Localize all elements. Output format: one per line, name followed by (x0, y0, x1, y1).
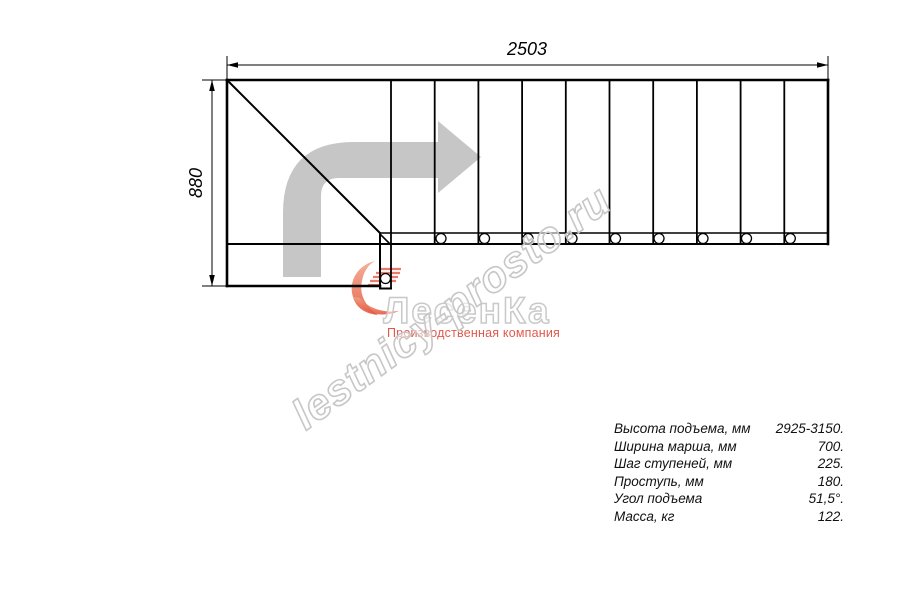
spec-row: Масса, кг 122. (614, 508, 844, 526)
spec-value: 225. (818, 455, 844, 473)
baluster-circle (480, 234, 490, 244)
baluster-circle (523, 234, 533, 244)
logo-tagline: Производственная компания (387, 326, 557, 340)
spec-row: Высота подъема, мм 2925-3150. (614, 420, 844, 438)
baluster-circle (785, 234, 795, 244)
baluster-circles (381, 234, 796, 284)
spec-label: Ширина марша, мм (614, 438, 737, 456)
spec-value: 2925-3150. (776, 420, 844, 438)
baluster-circle (567, 234, 577, 244)
left-dimension: 880 (186, 80, 226, 286)
spec-value: 122. (818, 508, 844, 526)
spec-value: 700. (818, 438, 844, 456)
spec-label: Проступь, мм (614, 473, 704, 491)
spec-value: 180. (818, 473, 844, 491)
baluster-circle (436, 234, 446, 244)
baluster-circle (698, 234, 708, 244)
spec-label: Высота подъема, мм (614, 420, 750, 438)
baluster-circle (654, 234, 664, 244)
dimension-label-width: 2503 (506, 39, 547, 59)
spec-row: Проступь, мм 180. (614, 473, 844, 491)
baluster-circle (742, 234, 752, 244)
dimension-label-height: 880 (186, 168, 206, 198)
baluster-circle (611, 234, 621, 244)
spec-row: Ширина марша, мм 700. (614, 438, 844, 456)
spec-row: Угол подъема 51,5°. (614, 490, 844, 508)
spec-value: 51,5°. (809, 490, 844, 508)
spec-label: Угол подъема (614, 490, 702, 508)
specs-table: Высота подъема, мм 2925-3150. Ширина мар… (614, 420, 844, 525)
step-lines (391, 80, 784, 289)
top-dimension: 2503 (227, 39, 828, 79)
stair-plan-page: 2503 880 ЛесенКа Производственная компан… (0, 0, 900, 600)
direction-arrow-icon (283, 121, 481, 277)
baluster-circle (381, 274, 391, 284)
spec-label: Масса, кг (614, 508, 674, 526)
spec-label: Шаг ступеней, мм (614, 455, 732, 473)
spec-row: Шаг ступеней, мм 225. (614, 455, 844, 473)
